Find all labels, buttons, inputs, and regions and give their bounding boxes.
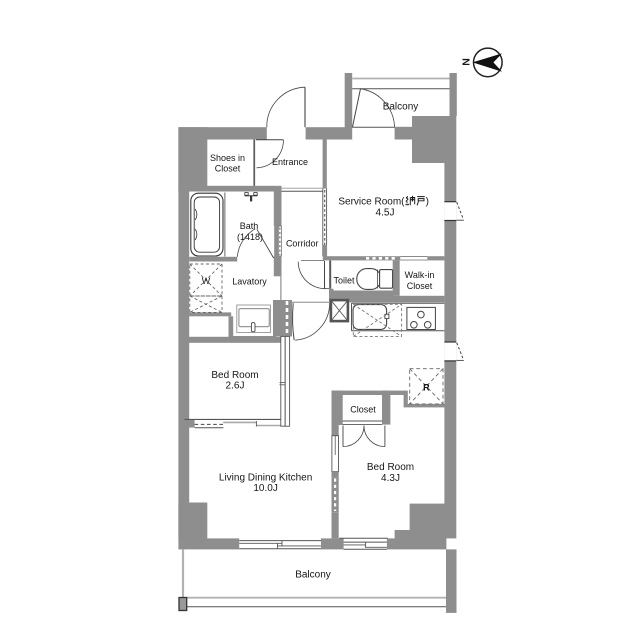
svg-text:Balcony: Balcony [295,570,331,581]
svg-text:R: R [423,382,430,392]
svg-text:Walk-in: Walk-in [405,270,435,280]
svg-text:Closet: Closet [407,281,433,291]
svg-text:Closet: Closet [350,404,376,414]
svg-text:Shoes in: Shoes in [210,153,245,163]
svg-text:Lavatory: Lavatory [232,277,267,287]
svg-text:(1418): (1418) [237,232,263,242]
svg-text:Living Dining Kitchen: Living Dining Kitchen [219,472,312,483]
svg-text:Closet: Closet [215,163,241,173]
svg-text:Bed Room: Bed Room [211,370,258,381]
svg-text:Bed Room: Bed Room [367,462,414,473]
svg-text:N: N [460,58,472,66]
svg-text:Bath: Bath [240,221,259,231]
svg-text:Service Room(: Service Room( [338,196,405,207]
svg-text:4.5J: 4.5J [376,208,395,219]
svg-text:Balcony: Balcony [383,102,419,113]
svg-text:Toilet: Toilet [333,275,355,285]
svg-text:W: W [202,276,211,286]
svg-text:Entrance: Entrance [272,157,308,167]
svg-text:10.0J: 10.0J [253,483,277,494]
svg-text:4.3J: 4.3J [381,473,400,484]
svg-text:2.6J: 2.6J [226,381,245,392]
svg-text:Corridor: Corridor [286,238,319,248]
svg-text:): ) [426,196,429,207]
